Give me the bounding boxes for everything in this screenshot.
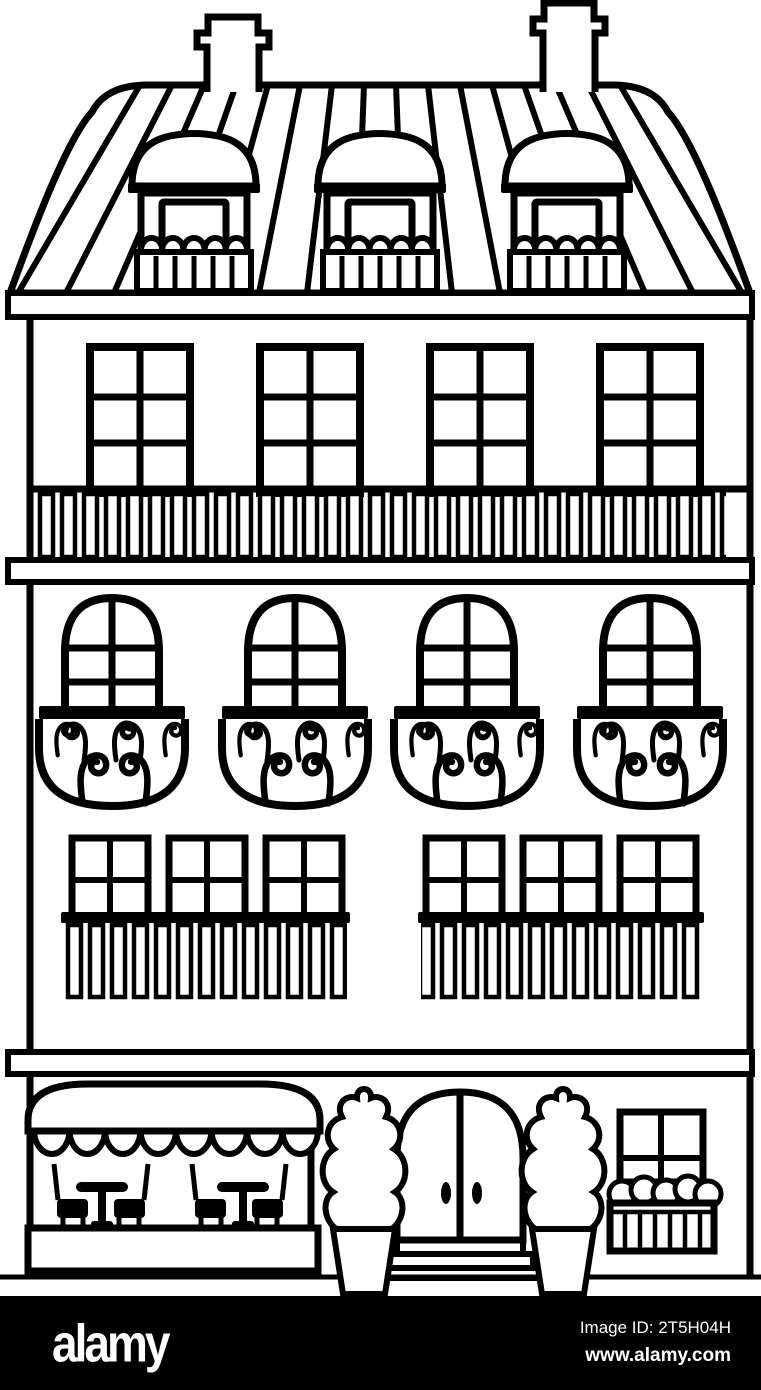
watermark-meta: Image ID: 2T5H04H www.alamy.com <box>580 1315 731 1371</box>
chimney-right <box>533 3 605 92</box>
awning-canopy <box>28 1084 320 1131</box>
house-illustration <box>0 0 761 1296</box>
dormer-window <box>128 134 260 292</box>
cornice-band-top <box>8 293 752 317</box>
cornice-band-middle <box>8 560 752 582</box>
terrace-planter <box>28 1228 318 1271</box>
alamy-url-text: www.alamy.com <box>580 1341 731 1370</box>
six-pane-window <box>600 347 700 493</box>
casement-window <box>72 838 148 918</box>
entrance-steps <box>377 1240 543 1278</box>
door-handle-right <box>472 1182 482 1204</box>
dormer-window <box>501 134 633 292</box>
door-handle-left <box>441 1182 451 1204</box>
bar-balcony-left <box>61 912 350 1000</box>
image-id-text: Image ID: 2T5H04H <box>580 1315 731 1341</box>
stock-image: alamy Image ID: 2T5H04H www.alamy.com <box>0 0 761 1390</box>
casement-window <box>266 838 342 918</box>
shop-window <box>620 1112 703 1182</box>
entrance-door <box>397 1092 523 1240</box>
balustrade <box>30 489 750 560</box>
six-pane-window <box>260 347 360 493</box>
six-pane-window <box>90 347 190 493</box>
cornice-band-bottom <box>8 1052 752 1074</box>
alamy-logo: alamy <box>52 1317 167 1370</box>
casement-window <box>620 838 696 918</box>
flower-box <box>609 1176 721 1251</box>
bar-balcony-right <box>418 912 704 1000</box>
chimney-left <box>197 17 269 92</box>
casement-window <box>169 838 245 918</box>
watermark-bar: alamy Image ID: 2T5H04H www.alamy.com <box>0 1296 761 1390</box>
dormer-window <box>314 134 446 292</box>
casement-window <box>426 838 502 918</box>
six-pane-window <box>430 347 530 493</box>
casement-window <box>523 838 599 918</box>
